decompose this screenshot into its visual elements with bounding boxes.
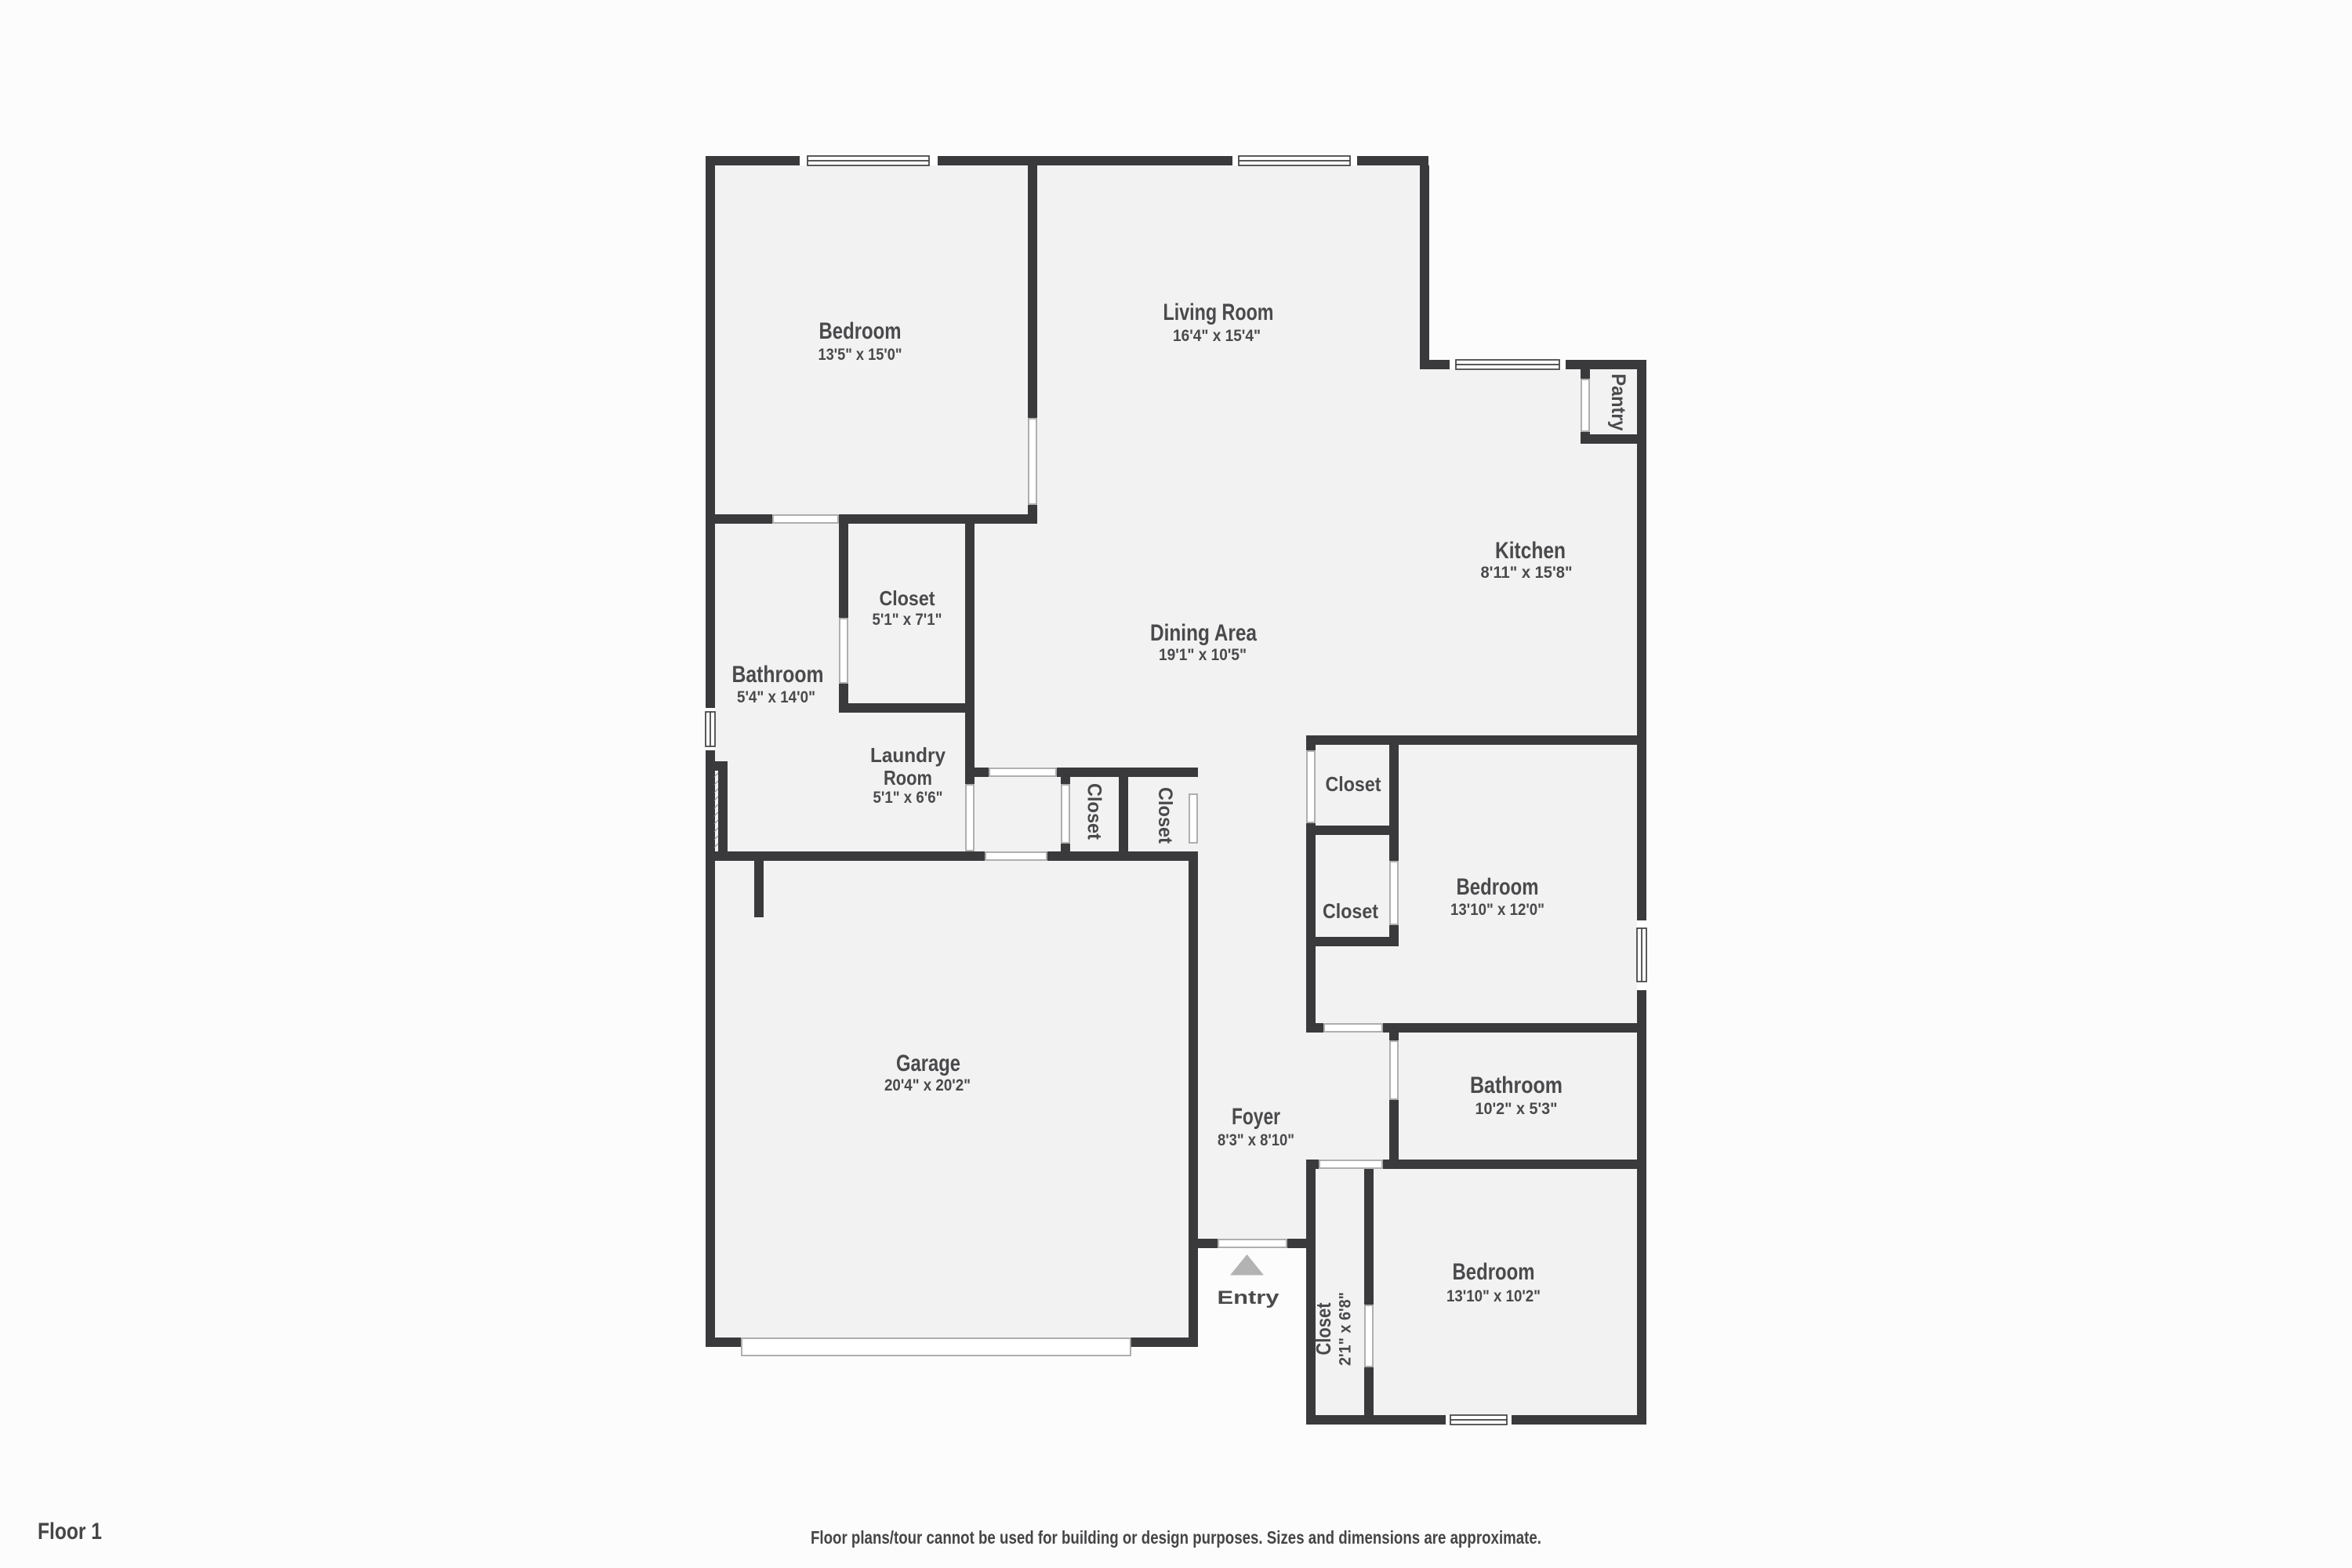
svg-text:Bedroom: Bedroom [1453, 1259, 1535, 1285]
svg-text:Closet: Closet [880, 586, 935, 610]
svg-text:Closet: Closet [1326, 772, 1381, 796]
svg-text:Bedroom: Bedroom [819, 318, 902, 344]
svg-text:Closet: Closet [1312, 1302, 1335, 1355]
svg-text:5'4" x 14'0": 5'4" x 14'0" [737, 688, 815, 706]
svg-text:Laundry: Laundry [870, 743, 946, 767]
svg-text:Foyer: Foyer [1232, 1104, 1280, 1130]
svg-text:8'11" x 15'8": 8'11" x 15'8" [1481, 563, 1573, 582]
svg-text:16'4" x 15'4": 16'4" x 15'4" [1173, 326, 1261, 345]
svg-text:Entry: Entry [1218, 1287, 1280, 1308]
svg-text:Living Room: Living Room [1163, 299, 1274, 325]
svg-text:13'10" x 10'2": 13'10" x 10'2" [1446, 1287, 1541, 1305]
svg-text:Floor 1: Floor 1 [38, 1519, 102, 1544]
svg-text:2'1" x 6'8": 2'1" x 6'8" [1337, 1292, 1355, 1366]
svg-text:Bathroom: Bathroom [1470, 1073, 1563, 1098]
svg-text:Garage: Garage [896, 1051, 960, 1076]
svg-text:Room: Room [884, 766, 932, 789]
svg-text:Closet: Closet [1154, 787, 1176, 844]
svg-text:5'1" x 6'6": 5'1" x 6'6" [873, 788, 943, 807]
svg-text:Pantry: Pantry [1607, 374, 1629, 431]
svg-text:19'1" x 10'5": 19'1" x 10'5" [1159, 645, 1247, 664]
svg-text:Closet: Closet [1083, 783, 1105, 840]
svg-text:13'5" x 15'0": 13'5" x 15'0" [818, 345, 902, 364]
svg-text:Dining Area: Dining Area [1150, 620, 1257, 646]
svg-text:8'3" x 8'10": 8'3" x 8'10" [1218, 1131, 1294, 1149]
svg-text:Bathroom: Bathroom [732, 662, 824, 688]
svg-text:Floor plans/tour cannot be use: Floor plans/tour cannot be used for buil… [811, 1527, 1541, 1548]
svg-text:5'1" x 7'1": 5'1" x 7'1" [873, 610, 942, 629]
svg-text:Bedroom: Bedroom [1457, 874, 1539, 900]
svg-text:20'4" x 20'2": 20'4" x 20'2" [884, 1076, 971, 1094]
svg-text:Kitchen: Kitchen [1495, 538, 1566, 564]
svg-text:Closet: Closet [1323, 899, 1378, 923]
svg-text:10'2" x 5'3": 10'2" x 5'3" [1475, 1099, 1558, 1118]
svg-text:13'10" x 12'0": 13'10" x 12'0" [1450, 900, 1544, 919]
